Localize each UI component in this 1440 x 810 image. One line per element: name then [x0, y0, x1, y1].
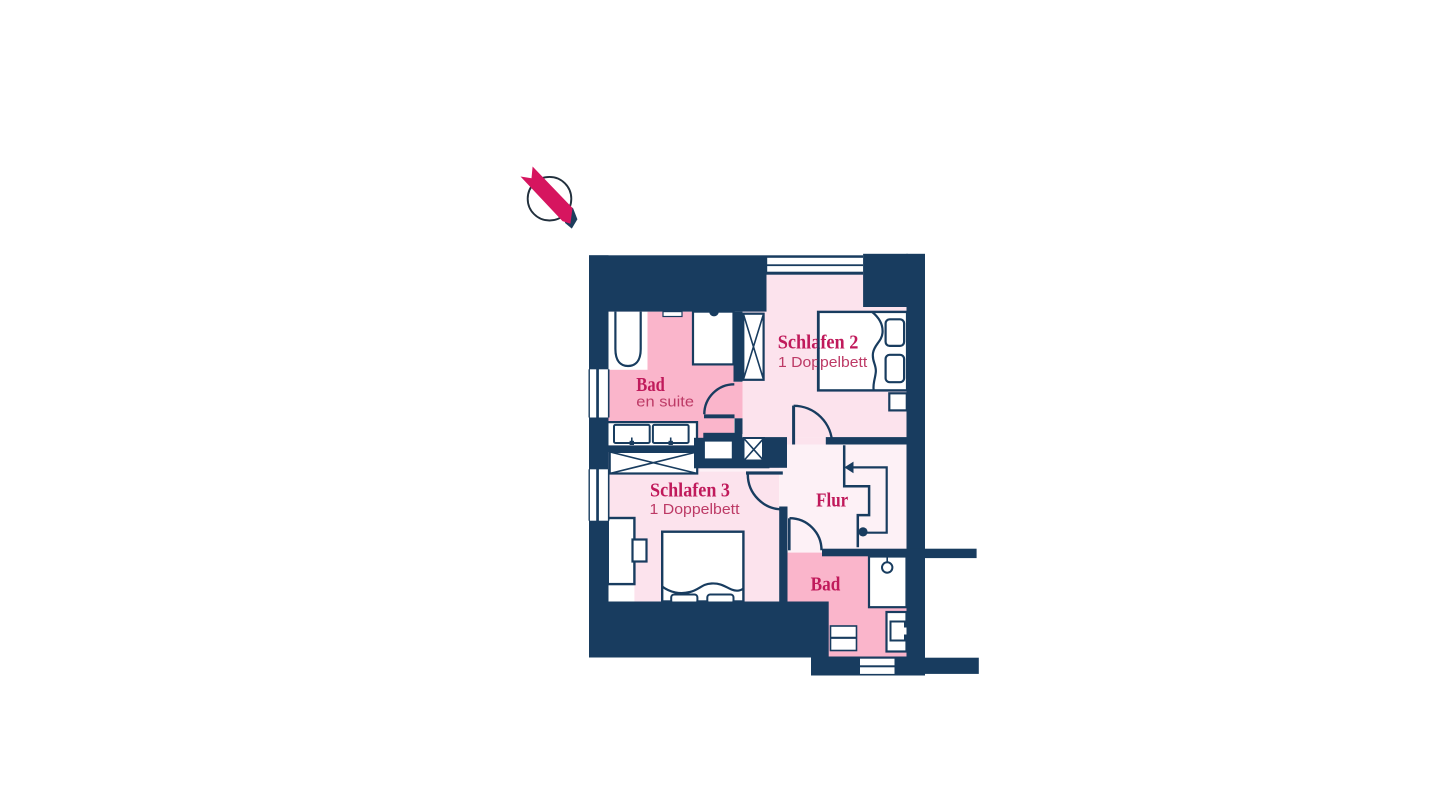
svg-text:Bad: Bad [636, 375, 665, 396]
svg-text:1 Doppelbett: 1 Doppelbett [778, 355, 867, 371]
svg-text:Flur: Flur [816, 490, 848, 511]
svg-text:Bad: Bad [811, 574, 841, 595]
svg-text:en suite: en suite [636, 394, 694, 410]
svg-text:1 Doppelbett: 1 Doppelbett [650, 502, 740, 518]
svg-text:Schlafen 3: Schlafen 3 [650, 481, 730, 502]
